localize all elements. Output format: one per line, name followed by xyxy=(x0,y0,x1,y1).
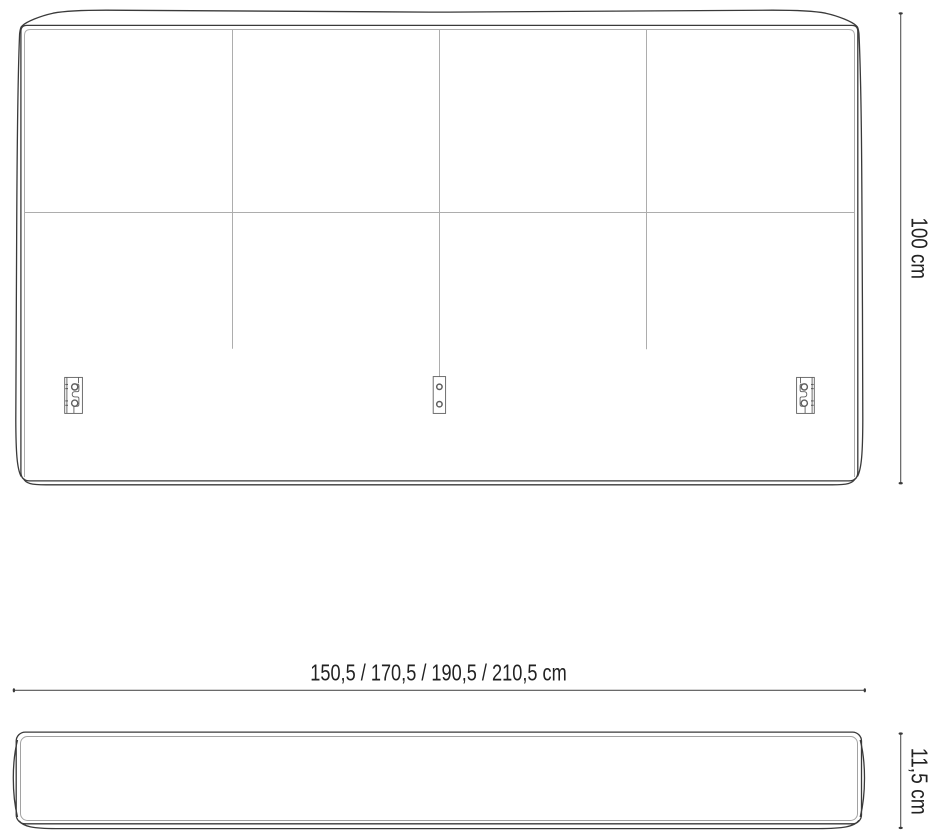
svg-text:100 cm: 100 cm xyxy=(907,217,933,279)
svg-text:150,5 / 170,5 / 190,5 / 210,5: 150,5 / 170,5 / 190,5 / 210,5 cm xyxy=(310,660,567,686)
svg-text:11,5 cm: 11,5 cm xyxy=(907,748,933,815)
